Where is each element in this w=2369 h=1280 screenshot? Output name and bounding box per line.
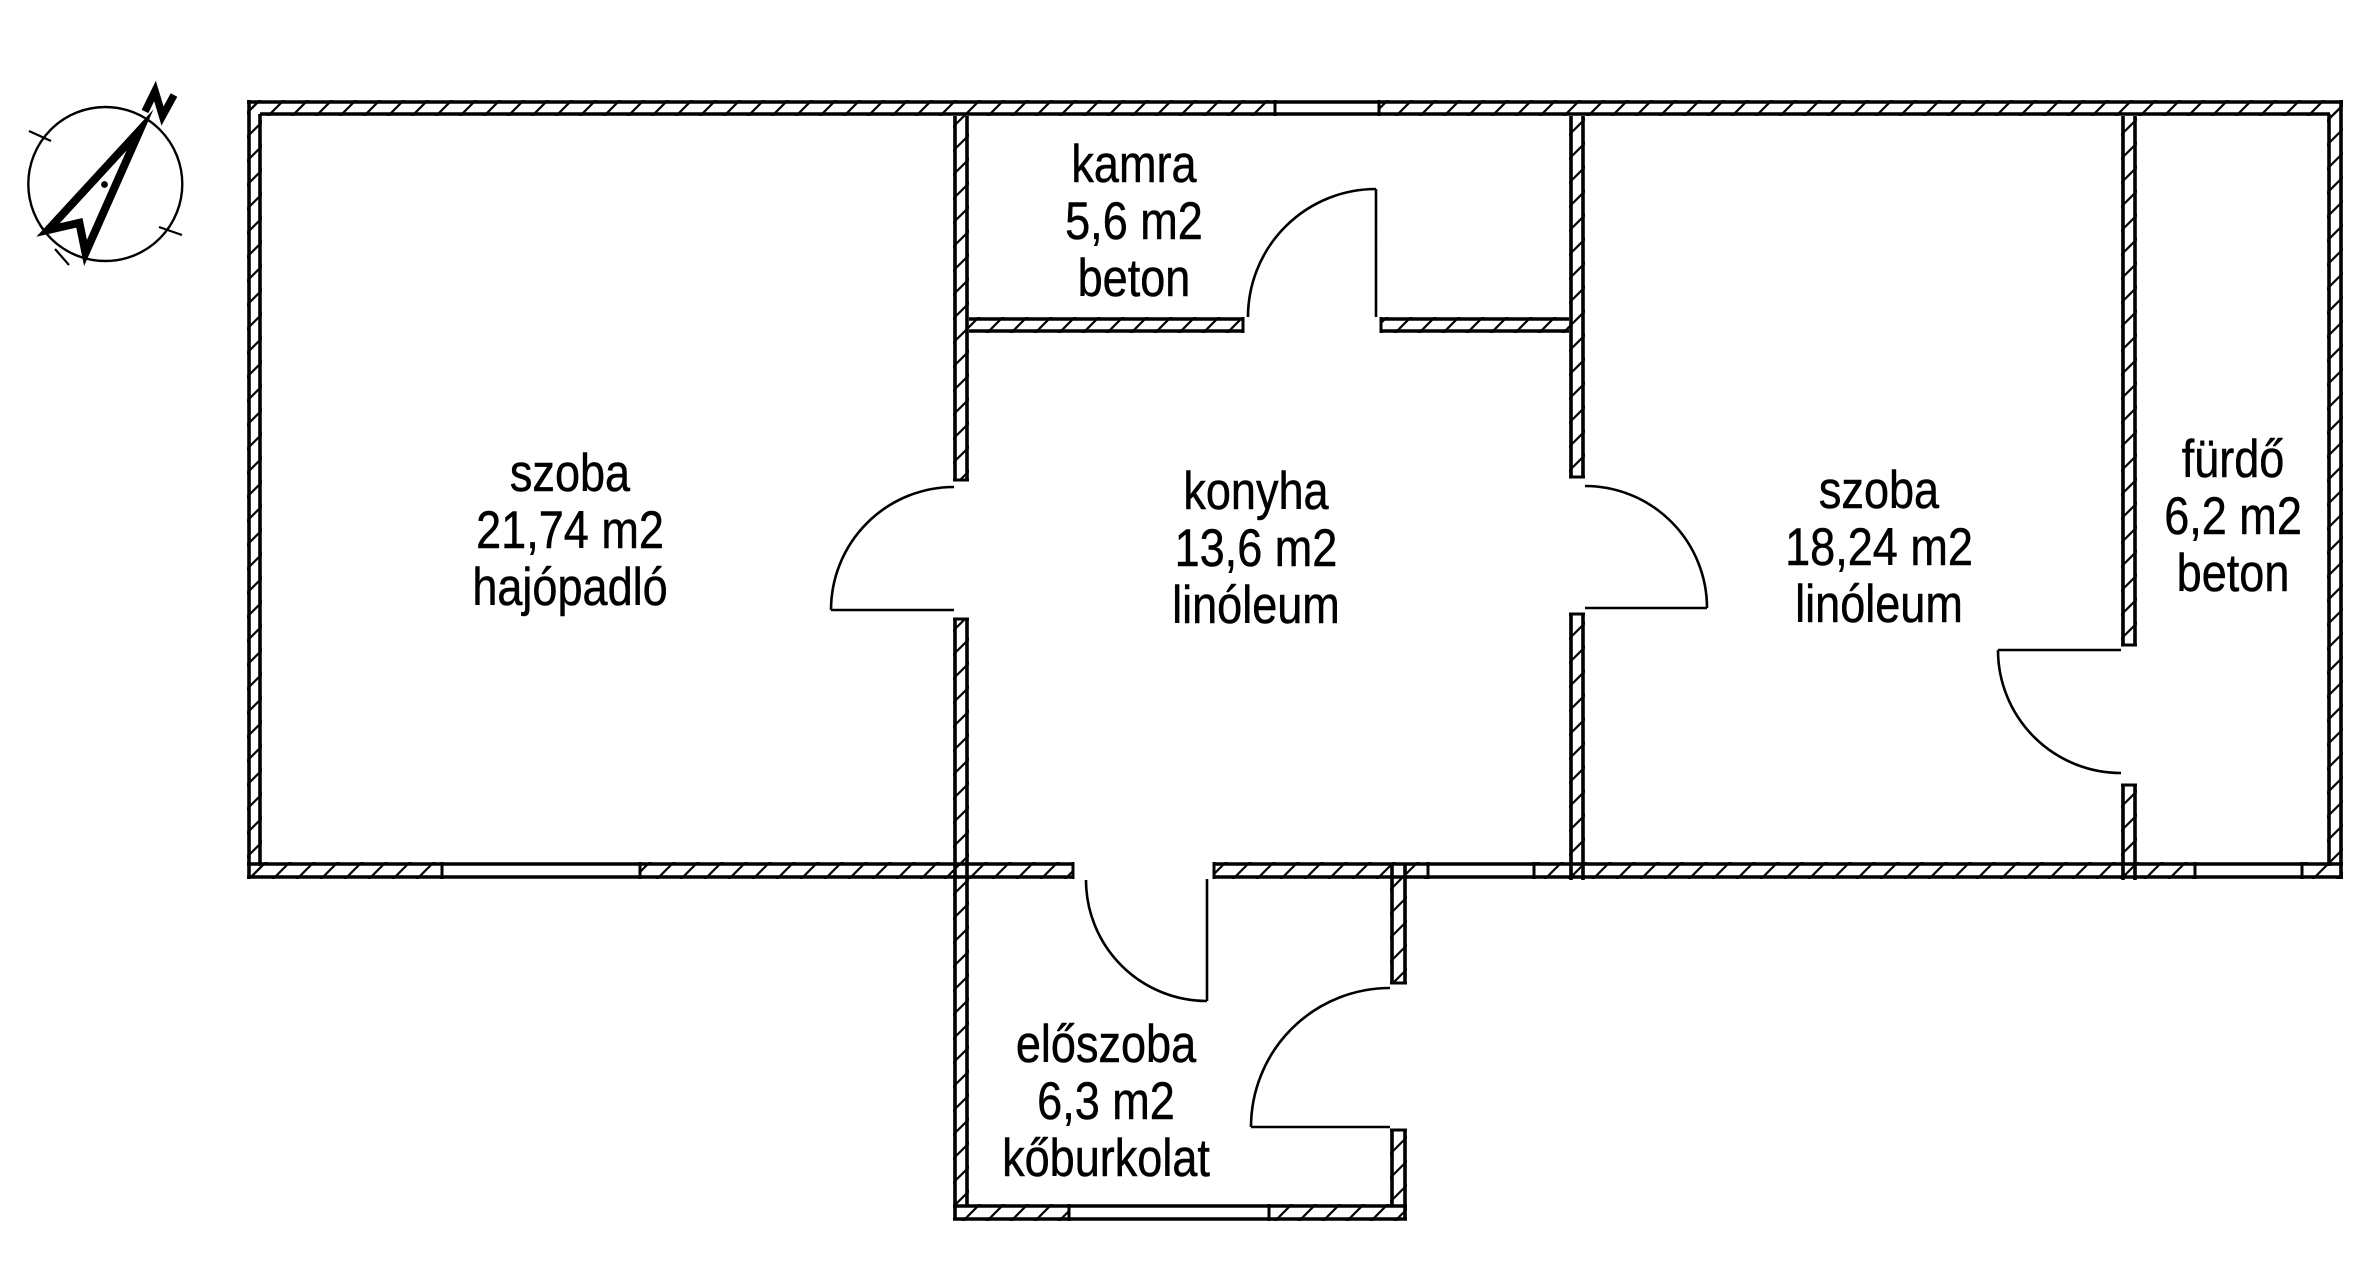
- svg-text:konyha: konyha: [1183, 462, 1329, 521]
- svg-text:szoba: szoba: [510, 444, 631, 503]
- svg-text:kőburkolat: kőburkolat: [1002, 1129, 1210, 1188]
- svg-text:fürdő: fürdő: [2182, 430, 2285, 489]
- svg-text:szoba: szoba: [1819, 461, 1940, 520]
- svg-text:beton: beton: [2177, 544, 2290, 603]
- svg-text:6,2 m2: 6,2 m2: [2164, 487, 2302, 546]
- svg-text:linóleum: linóleum: [1172, 576, 1340, 635]
- svg-text:linóleum: linóleum: [1795, 575, 1963, 634]
- svg-text:13,6 m2: 13,6 m2: [1175, 519, 1338, 578]
- svg-text:kamra: kamra: [1071, 135, 1197, 194]
- svg-text:előszoba: előszoba: [1016, 1015, 1197, 1074]
- svg-text:21,74 m2: 21,74 m2: [476, 501, 664, 560]
- svg-text:5,6 m2: 5,6 m2: [1065, 192, 1203, 251]
- svg-text:hajópadló: hajópadló: [472, 558, 667, 617]
- svg-text:6,3 m2: 6,3 m2: [1037, 1072, 1175, 1131]
- svg-text:beton: beton: [1078, 249, 1191, 308]
- svg-text:18,24 m2: 18,24 m2: [1785, 518, 1973, 577]
